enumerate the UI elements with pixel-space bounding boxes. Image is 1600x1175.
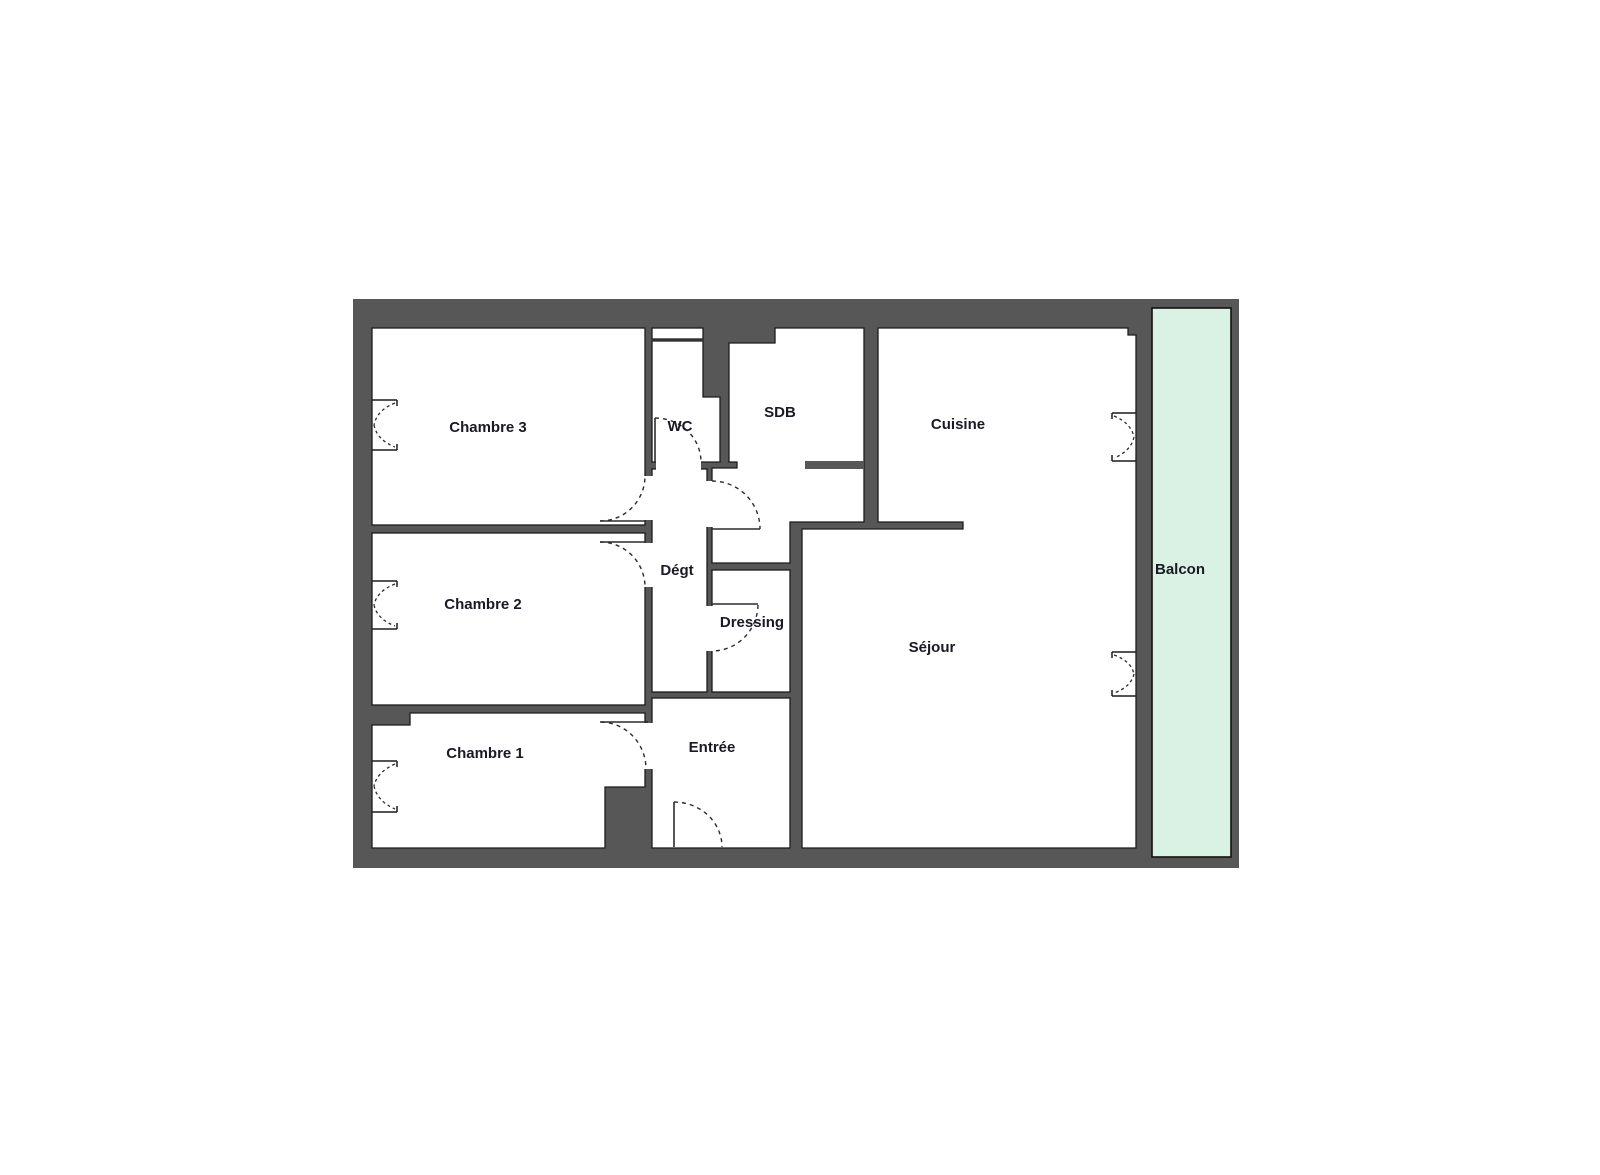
wc-duct-strip [652, 328, 703, 339]
room-label-chambre2: Chambre 2 [444, 596, 522, 613]
room-label-balcon: Balcon [1155, 561, 1205, 578]
room-entree [652, 698, 790, 848]
room-label-chambre3: Chambre 3 [449, 419, 527, 436]
balcony-area [1152, 308, 1231, 857]
room-label-cuisine: Cuisine [931, 416, 985, 433]
door-gap-chambre2 [644, 543, 653, 587]
room-degt [652, 469, 707, 692]
room-label-sdb: SDB [764, 404, 796, 421]
room-label-sejour: Séjour [909, 639, 956, 656]
room-label-chambre1: Chambre 1 [446, 745, 524, 762]
door-gap-sdb-lobby [706, 481, 713, 527]
room-label-dressing: Dressing [720, 614, 784, 631]
room-label-degt: Dégt [660, 562, 693, 579]
room-chambre-1 [372, 713, 645, 848]
room-chambre-2 [372, 533, 645, 705]
floor-plan-page: Chambre 3 Chambre 2 Chambre 1 WC SDB Dég… [0, 0, 1600, 1175]
door-gap-wc [656, 461, 701, 470]
room-label-entree: Entrée [689, 739, 736, 756]
floor-plan-svg: Chambre 3 Chambre 2 Chambre 1 WC SDB Dég… [0, 0, 1600, 1175]
door-gap-chambre3 [644, 476, 653, 520]
sdb-wall-stub [805, 461, 864, 469]
room-dressing [712, 570, 790, 692]
room-label-wc: WC [668, 418, 693, 435]
door-gap-dressing [706, 606, 713, 651]
